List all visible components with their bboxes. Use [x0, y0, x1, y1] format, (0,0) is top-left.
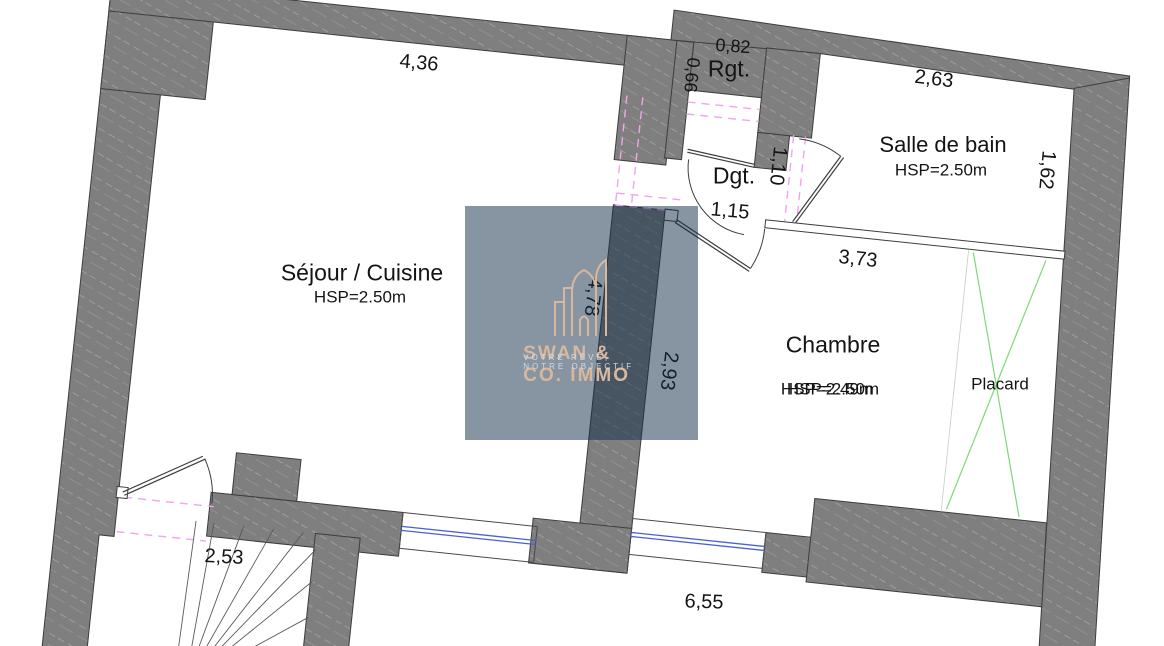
- dim-dgt-depth: 1,10: [766, 146, 790, 187]
- dim-dgt-width: 1,15: [710, 199, 751, 222]
- dim-rgt-width: 0,82: [715, 36, 751, 56]
- agency-tagline-text: VOTRE RÊVE, NOTRE OBJECTIF: [523, 353, 640, 371]
- agency-watermark: SWAN & CO. IMMO VOTRE RÊVE, NOTRE OBJECT…: [465, 206, 698, 440]
- dim-sdb-width: 2,63: [913, 67, 954, 92]
- agency-logo-icon: [547, 258, 617, 338]
- sejour-room-label: Séjour / Cuisine: [281, 262, 443, 285]
- dim-stairs-width: 2,53: [204, 546, 244, 568]
- placard-label: Placard: [971, 376, 1029, 393]
- chambre-room-label: Chambre: [786, 334, 881, 357]
- dim-sdb-depth: 1,62: [1035, 150, 1058, 191]
- salle-de-bain-height-label: HSP=2.50m: [895, 162, 987, 179]
- floor-plan-page: Séjour / Cuisine HSP=2.50m Chambre HSP=2…: [0, 0, 1164, 646]
- salle-de-bain-room-label: Salle de bain: [879, 134, 1006, 156]
- dim-chambre-top: 3,73: [838, 247, 879, 271]
- dgt-room-label: Dgt.: [713, 165, 755, 188]
- dim-bottom-total: 6,55: [684, 591, 724, 612]
- dim-sejour-top: 4,36: [399, 51, 440, 74]
- rgt-room-label: Rgt.: [708, 58, 750, 81]
- sejour-height-label: HSP=2.50m: [314, 289, 406, 306]
- chambre-height-overlay-label: HSP=2.49m: [781, 381, 873, 398]
- dim-rgt-depth: 0,66: [681, 57, 703, 94]
